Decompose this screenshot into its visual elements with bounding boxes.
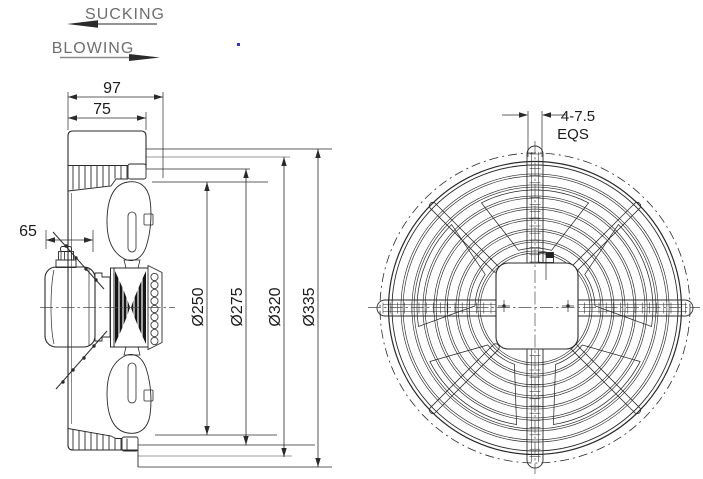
side-view: 97 75 65 Ø250 Ø275 Ø320 Ø335	[19, 80, 332, 467]
dim-75: 75	[93, 101, 111, 118]
dim-dia-250: Ø250	[190, 287, 207, 326]
dim-clip-width: 4-7.5	[561, 108, 595, 125]
dim-clip-spacing: EQS	[557, 126, 589, 143]
fan-technical-drawing-page: SUCKING BLOWING	[0, 0, 703, 479]
impeller-scallops	[151, 273, 158, 344]
fan-blade-lower	[107, 347, 153, 433]
clip-dimension: 4-7.5 EQS	[502, 108, 595, 157]
motor	[45, 267, 110, 347]
dim-dia-275: Ø275	[229, 287, 246, 326]
dim-65: 65	[19, 223, 37, 240]
fan-technical-drawing: SUCKING BLOWING	[0, 0, 703, 479]
dim-dia-320: Ø320	[267, 287, 284, 326]
motor-plate	[496, 253, 578, 350]
blowing-label: BLOWING	[52, 40, 135, 57]
dim-97: 97	[103, 80, 121, 97]
front-view: 4-7.5 EQS	[368, 108, 700, 474]
bell-mouth-top-ribs	[68, 166, 128, 192]
stray-dot	[237, 43, 240, 46]
airflow-legend: SUCKING BLOWING	[52, 6, 240, 61]
side-dimensions: 97 75 65 Ø250 Ø275 Ø320 Ø335	[19, 80, 321, 467]
fan-blade-upper	[107, 182, 153, 268]
terminal-gland	[56, 247, 76, 268]
dim-dia-335: Ø335	[301, 287, 318, 326]
bell-mouth-bottom-ribs	[68, 429, 127, 451]
